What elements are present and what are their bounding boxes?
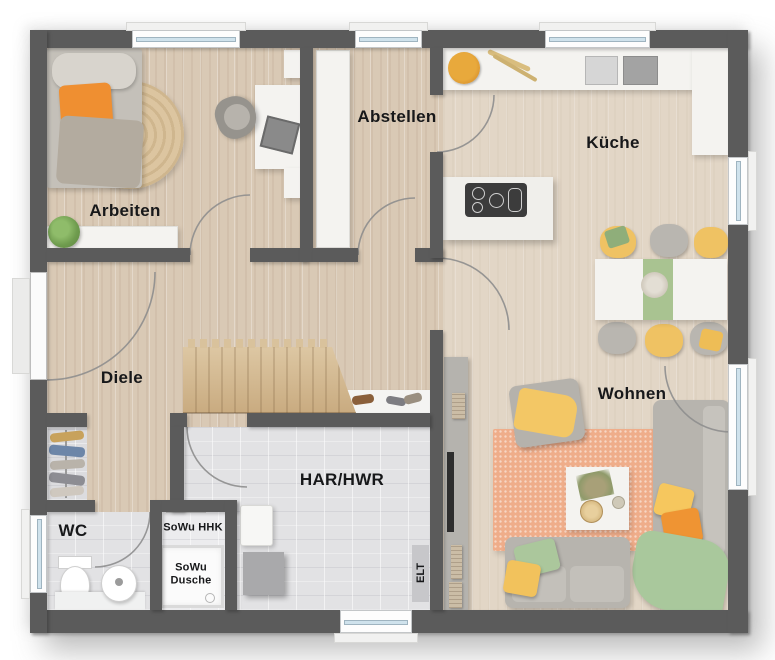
books [452,393,465,419]
window-essplatz [728,157,748,225]
room-label-arbeiten: Arbeiten [89,201,160,221]
kitchen-counter-right [692,48,728,155]
shower-drain [205,593,215,603]
wall-abstellen-south-left [313,248,358,262]
room-label-har-hwr: HAR/HWR [300,470,384,490]
wall-exterior-right [728,30,748,633]
wall-har-north-right [247,413,430,427]
window-har [340,610,412,633]
sink-faucet [115,578,123,586]
label-sowu-dusche: SoWu Dusche [167,561,215,586]
room-label-wohnen: Wohnen [598,384,667,404]
sofa-cushion [570,566,624,602]
wall-arbeiten-abstellen [300,48,313,262]
dining-chair-yellow [694,227,728,258]
wall-kueche-west-top [430,48,443,95]
wall-har-north-left [170,413,187,427]
window-abstellen [355,30,422,48]
label-sowu-hhk: SoWu HHK [163,522,222,535]
wall-wc-north [47,500,95,512]
washing-machine [240,505,273,546]
books [451,545,462,579]
sofa-chaise-back [703,406,725,554]
window-kueche [545,30,650,48]
room-label-wc: WC [59,521,88,541]
window-arbeiten [132,30,240,48]
window-sill [334,633,418,643]
decor-bowl [580,500,603,523]
kitchen-sink [585,56,618,85]
window-sill [748,358,757,496]
bed-blanket [56,115,145,189]
window-wc [30,515,47,593]
cooktop-burner [472,187,485,200]
terrace-door [728,364,748,490]
wall-wohnen-west [430,330,443,610]
entrance-step [12,278,30,374]
dining-chair-gray [598,322,636,354]
room-label-abstellen: Abstellen [357,107,436,127]
tv [447,452,454,532]
blanket-on-chair [698,328,724,352]
floorplan: Arbeiten Abstellen Küche Diele Wohnen WC… [0,0,775,660]
dining-chair-gray [650,224,688,257]
wall-shower-east [225,500,237,610]
table-flowers [641,272,668,298]
entrance-door [30,272,47,380]
label-elt: ELT [415,563,427,583]
wall-arbeiten-south-left [47,248,190,262]
cooktop-burner-oval [508,188,522,212]
wall-arbeiten-south-right [250,248,307,262]
wall-shower-west [150,500,162,610]
room-label-diele: Diele [101,368,143,388]
cooktop-burner [489,193,504,208]
cooktop-burner [472,202,483,213]
room-label-kueche: Küche [586,133,639,153]
plant [48,216,80,248]
office-chair-cushion [224,104,250,130]
window-sill [21,509,30,599]
table-bowl [614,277,639,302]
storage-cabinet [316,50,350,248]
pillow-yellow [502,559,541,597]
window-sill [748,151,757,231]
dining-chair-yellow [645,324,683,357]
fruit-bowl [448,52,480,84]
kitchen-sink-2 [623,56,658,85]
vase [612,496,625,509]
wall-kueche-west-mid [430,152,443,258]
wall-niche-north [47,413,87,427]
utility-box [243,552,284,595]
books [449,582,462,608]
